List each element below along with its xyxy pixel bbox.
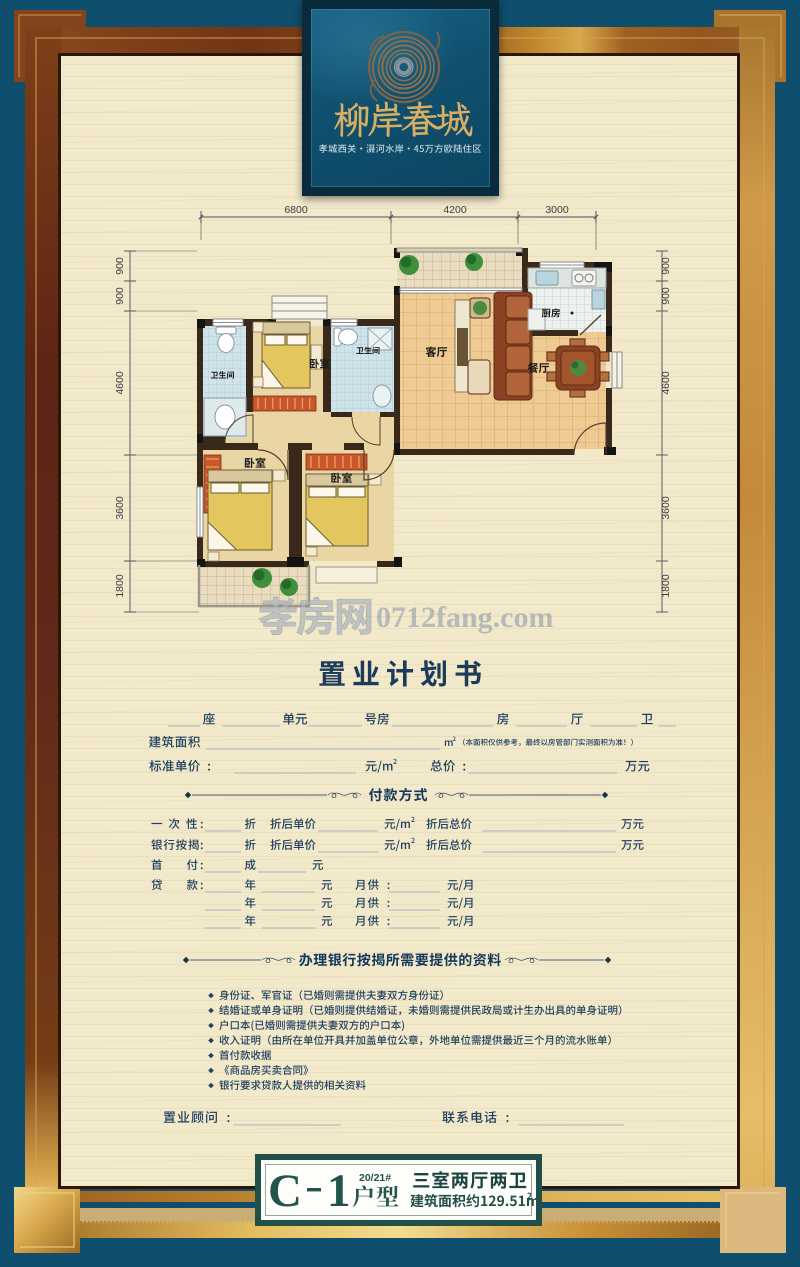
svg-text:1: 1 [327,1165,351,1217]
svg-text:20/21#: 20/21# [359,1172,391,1184]
svg-text:C: C [268,1165,302,1217]
svg-text:0712fang.com: 0712fang.com [376,601,553,634]
